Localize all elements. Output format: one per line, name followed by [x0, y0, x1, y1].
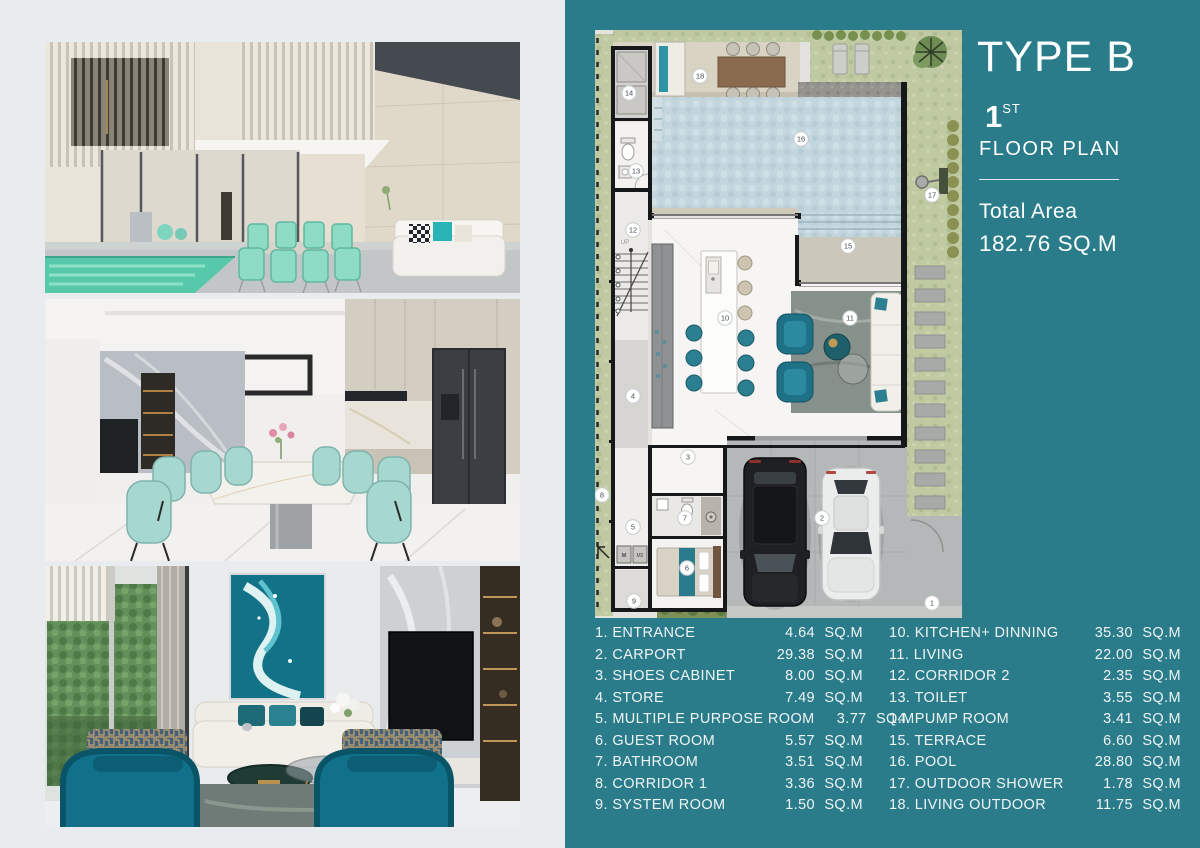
legend-area-unit: SQ.M — [1133, 626, 1181, 641]
legend-area-unit: SQ.M — [1133, 798, 1181, 813]
legend-room-name: 14. PUMP ROOM — [889, 712, 1081, 727]
plan-room-badge: 6 — [680, 561, 694, 575]
legend-area-unit: SQ.M — [815, 777, 863, 792]
marble-feature-wall — [100, 351, 245, 473]
plan-room-badge: 10 — [718, 311, 732, 325]
title-divider — [979, 179, 1119, 180]
living-room-illustration — [45, 566, 520, 827]
plan-room-badge: 18 — [693, 69, 707, 83]
floor-ordinal: ST — [1002, 101, 1021, 116]
floor-number-line: 1ST — [985, 101, 1182, 132]
stepping-stones — [915, 266, 945, 509]
abstract-painting — [230, 574, 325, 699]
legend-item: 11. LIVING22.00SQ.M — [889, 648, 1181, 663]
legend-item: 17. OUTDOOR SHOWER1.78SQ.M — [889, 777, 1181, 792]
plan-panel: UP — [565, 0, 1200, 848]
plan-room-badge: 16 — [794, 132, 808, 146]
legend-room-area: 7.49 — [763, 691, 815, 706]
legend-room-area: 3.36 — [763, 777, 815, 792]
svg-text:11: 11 — [846, 314, 854, 323]
legend-room-area: 3.51 — [763, 755, 815, 770]
legend-room-area: 11.75 — [1081, 798, 1133, 813]
svg-text:15: 15 — [844, 242, 852, 251]
legend-item: 18. LIVING OUTDOOR11.75SQ.M — [889, 798, 1181, 813]
svg-text:10: 10 — [721, 314, 729, 323]
plan-type-title: TYPE B — [977, 34, 1182, 81]
floor-number: 1 — [985, 99, 1002, 134]
legend-area-unit: SQ.M — [815, 734, 863, 749]
legend-room-area: 8.00 — [763, 669, 815, 684]
legend-item: 6. GUEST ROOM5.57SQ.M — [595, 734, 863, 749]
photo-pool-terrace — [45, 42, 520, 293]
legend-area-unit: SQ.M — [1133, 691, 1181, 706]
legend-room-area: 5.57 — [763, 734, 815, 749]
legend-room-area: 4.64 — [763, 626, 815, 641]
plan-room-badge: 1 — [925, 596, 939, 610]
legend-item: 8. CORRIDOR 13.36SQ.M — [595, 777, 863, 792]
legend-item: 13. TOILET3.55SQ.M — [889, 691, 1181, 706]
plan-room-badge: 5 — [626, 520, 640, 534]
legend-item: 3. SHOES CABINET8.00SQ.M — [595, 669, 863, 684]
up-label: UP — [620, 239, 629, 246]
legend-item: 14. PUMP ROOM3.41SQ.M — [889, 712, 1181, 727]
glass-table — [838, 354, 868, 384]
shelving-unit — [480, 566, 520, 801]
svg-text:9: 9 — [632, 597, 636, 606]
legend-item: 10. KITCHEN+ DINNING35.30SQ.M — [889, 626, 1181, 641]
svg-text:8: 8 — [600, 491, 604, 500]
legend-room-name: 17. OUTDOOR SHOWER — [889, 777, 1081, 792]
legend-room-area: 35.30 — [1081, 626, 1133, 641]
legend-item: 12. CORRIDOR 22.35SQ.M — [889, 669, 1181, 684]
legend-room-name: 15. TERRACE — [889, 734, 1081, 749]
living-furniture — [777, 291, 903, 413]
legend-room-area: 3.41 — [1081, 712, 1133, 727]
legend-item: 2. CARPORT29.38SQ.M — [595, 648, 863, 663]
legend-area-unit: SQ.M — [1133, 755, 1181, 770]
legend-room-area: 3.55 — [1081, 691, 1133, 706]
legend-room-name: 12. CORRIDOR 2 — [889, 669, 1081, 684]
photo-column — [0, 0, 565, 848]
legend-item: 7. BATHROOM3.51SQ.M — [595, 755, 863, 770]
legend-room-name: 7. BATHROOM — [595, 755, 763, 770]
title-block: TYPE B 1ST FLOOR PLAN Total Area 182.76 … — [977, 34, 1182, 257]
legend-item: 1. ENTRANCE4.64SQ.M — [595, 626, 863, 641]
sofa — [871, 293, 903, 411]
carport-gate — [755, 436, 867, 441]
legend-room-area: 1.78 — [1081, 777, 1133, 792]
meter-label-2: M2 — [637, 553, 644, 559]
svg-text:2: 2 — [820, 514, 824, 523]
plan-room-badge: 17 — [925, 188, 939, 202]
legend-room-name: 2. CARPORT — [595, 648, 763, 663]
legend-item: 9. SYSTEM ROOM1.50SQ.M — [595, 798, 863, 813]
legend-item: 5. MULTIPLE PURPOSE ROOM3.77SQ.M — [595, 712, 863, 727]
legend-area-unit: SQ.M — [815, 626, 863, 641]
plan-room-badge: 12 — [626, 223, 640, 237]
plan-room-badge: 14 — [622, 86, 636, 100]
legend-room-area: 6.60 — [1081, 734, 1133, 749]
legend-column-right: 10. KITCHEN+ DINNING35.30SQ.M11. LIVING2… — [889, 626, 1181, 813]
svg-text:17: 17 — [928, 191, 936, 200]
legend-area-unit: SQ.M — [815, 798, 863, 813]
black-suv — [739, 458, 811, 610]
svg-text:13: 13 — [632, 167, 640, 176]
legend-room-name: 1. ENTRANCE — [595, 626, 763, 641]
legend-room-name: 6. GUEST ROOM — [595, 734, 763, 749]
total-area-value: 182.76 SQ.M — [979, 231, 1182, 257]
floor-plan-drawing: UP — [595, 30, 962, 618]
legend-room-name: 16. POOL — [889, 755, 1081, 770]
meter-label-1: M — [622, 553, 626, 559]
legend-room-name: 18. LIVING OUTDOOR — [889, 798, 1081, 813]
pool-terrace-illustration — [45, 42, 520, 293]
plan-room-badge: 7 — [678, 511, 692, 525]
legend-room-name: 9. SYSTEM ROOM — [595, 798, 763, 813]
legend-room-area: 3.77 — [815, 712, 867, 727]
svg-text:18: 18 — [696, 72, 704, 81]
svg-text:6: 6 — [685, 564, 689, 573]
plan-room-badge: 3 — [681, 450, 695, 464]
brochure-page: UP — [0, 0, 1200, 848]
bar-stools — [738, 256, 752, 320]
legend-room-name: 10. KITCHEN+ DINNING — [889, 626, 1081, 641]
legend-room-name: 5. MULTIPLE PURPOSE ROOM — [595, 712, 815, 727]
svg-text:4: 4 — [631, 392, 635, 401]
legend-room-name: 13. TOILET — [889, 691, 1081, 706]
legend-item: 4. STORE7.49SQ.M — [595, 691, 863, 706]
legend-room-name: 11. LIVING — [889, 648, 1081, 663]
dining-room-illustration — [45, 299, 520, 561]
svg-text:3: 3 — [686, 453, 690, 462]
svg-text:16: 16 — [797, 135, 805, 144]
photo-living-room — [45, 566, 520, 827]
legend-area-unit: SQ.M — [815, 669, 863, 684]
photo-dining-room — [45, 299, 520, 561]
gravel-band — [798, 82, 905, 97]
floor-plan-label: FLOOR PLAN — [979, 138, 1182, 161]
svg-text:1: 1 — [930, 599, 934, 608]
legend-area-unit: SQ.M — [815, 691, 863, 706]
plan-room-badge: 13 — [629, 164, 643, 178]
legend-room-name: 4. STORE — [595, 691, 763, 706]
plan-room-badge: 4 — [626, 389, 640, 403]
legend-room-area: 29.38 — [763, 648, 815, 663]
legend-room-name: 8. CORRIDOR 1 — [595, 777, 763, 792]
plan-room-badge: 8 — [595, 488, 609, 502]
legend-room-area: 1.50 — [763, 798, 815, 813]
plan-room-badge: 2 — [815, 511, 829, 525]
plan-room-badge: 11 — [843, 311, 857, 325]
legend-room-area: 22.00 — [1081, 648, 1133, 663]
legend-area-unit: SQ.M — [1133, 669, 1181, 684]
legend-area-unit: SQ.M — [815, 755, 863, 770]
room-legend: 1. ENTRANCE4.64SQ.M2. CARPORT29.38SQ.M3.… — [595, 626, 1181, 813]
legend-area-unit: SQ.M — [1133, 648, 1181, 663]
svg-text:12: 12 — [629, 226, 637, 235]
outdoor-table — [718, 57, 785, 87]
legend-area-unit: SQ.M — [1133, 734, 1181, 749]
svg-text:7: 7 — [683, 514, 687, 523]
legend-item: 16. POOL28.80SQ.M — [889, 755, 1181, 770]
legend-area-unit: SQ.M — [1133, 712, 1181, 727]
plan-room-badge: 9 — [627, 594, 641, 608]
legend-column-left: 1. ENTRANCE4.64SQ.M2. CARPORT29.38SQ.M3.… — [595, 626, 863, 813]
plan-room-badge: 15 — [841, 239, 855, 253]
legend-room-area: 28.80 — [1081, 755, 1133, 770]
legend-area-unit: SQ.M — [815, 648, 863, 663]
svg-text:5: 5 — [631, 523, 635, 532]
svg-text:14: 14 — [625, 89, 633, 98]
total-area-label: Total Area — [979, 200, 1182, 224]
legend-item: 15. TERRACE6.60SQ.M — [889, 734, 1181, 749]
legend-area-unit: SQ.M — [1133, 777, 1181, 792]
floor-plan: UP — [595, 30, 962, 618]
legend-room-area: 2.35 — [1081, 669, 1133, 684]
white-car — [818, 466, 884, 602]
legend-room-name: 3. SHOES CABINET — [595, 669, 763, 684]
